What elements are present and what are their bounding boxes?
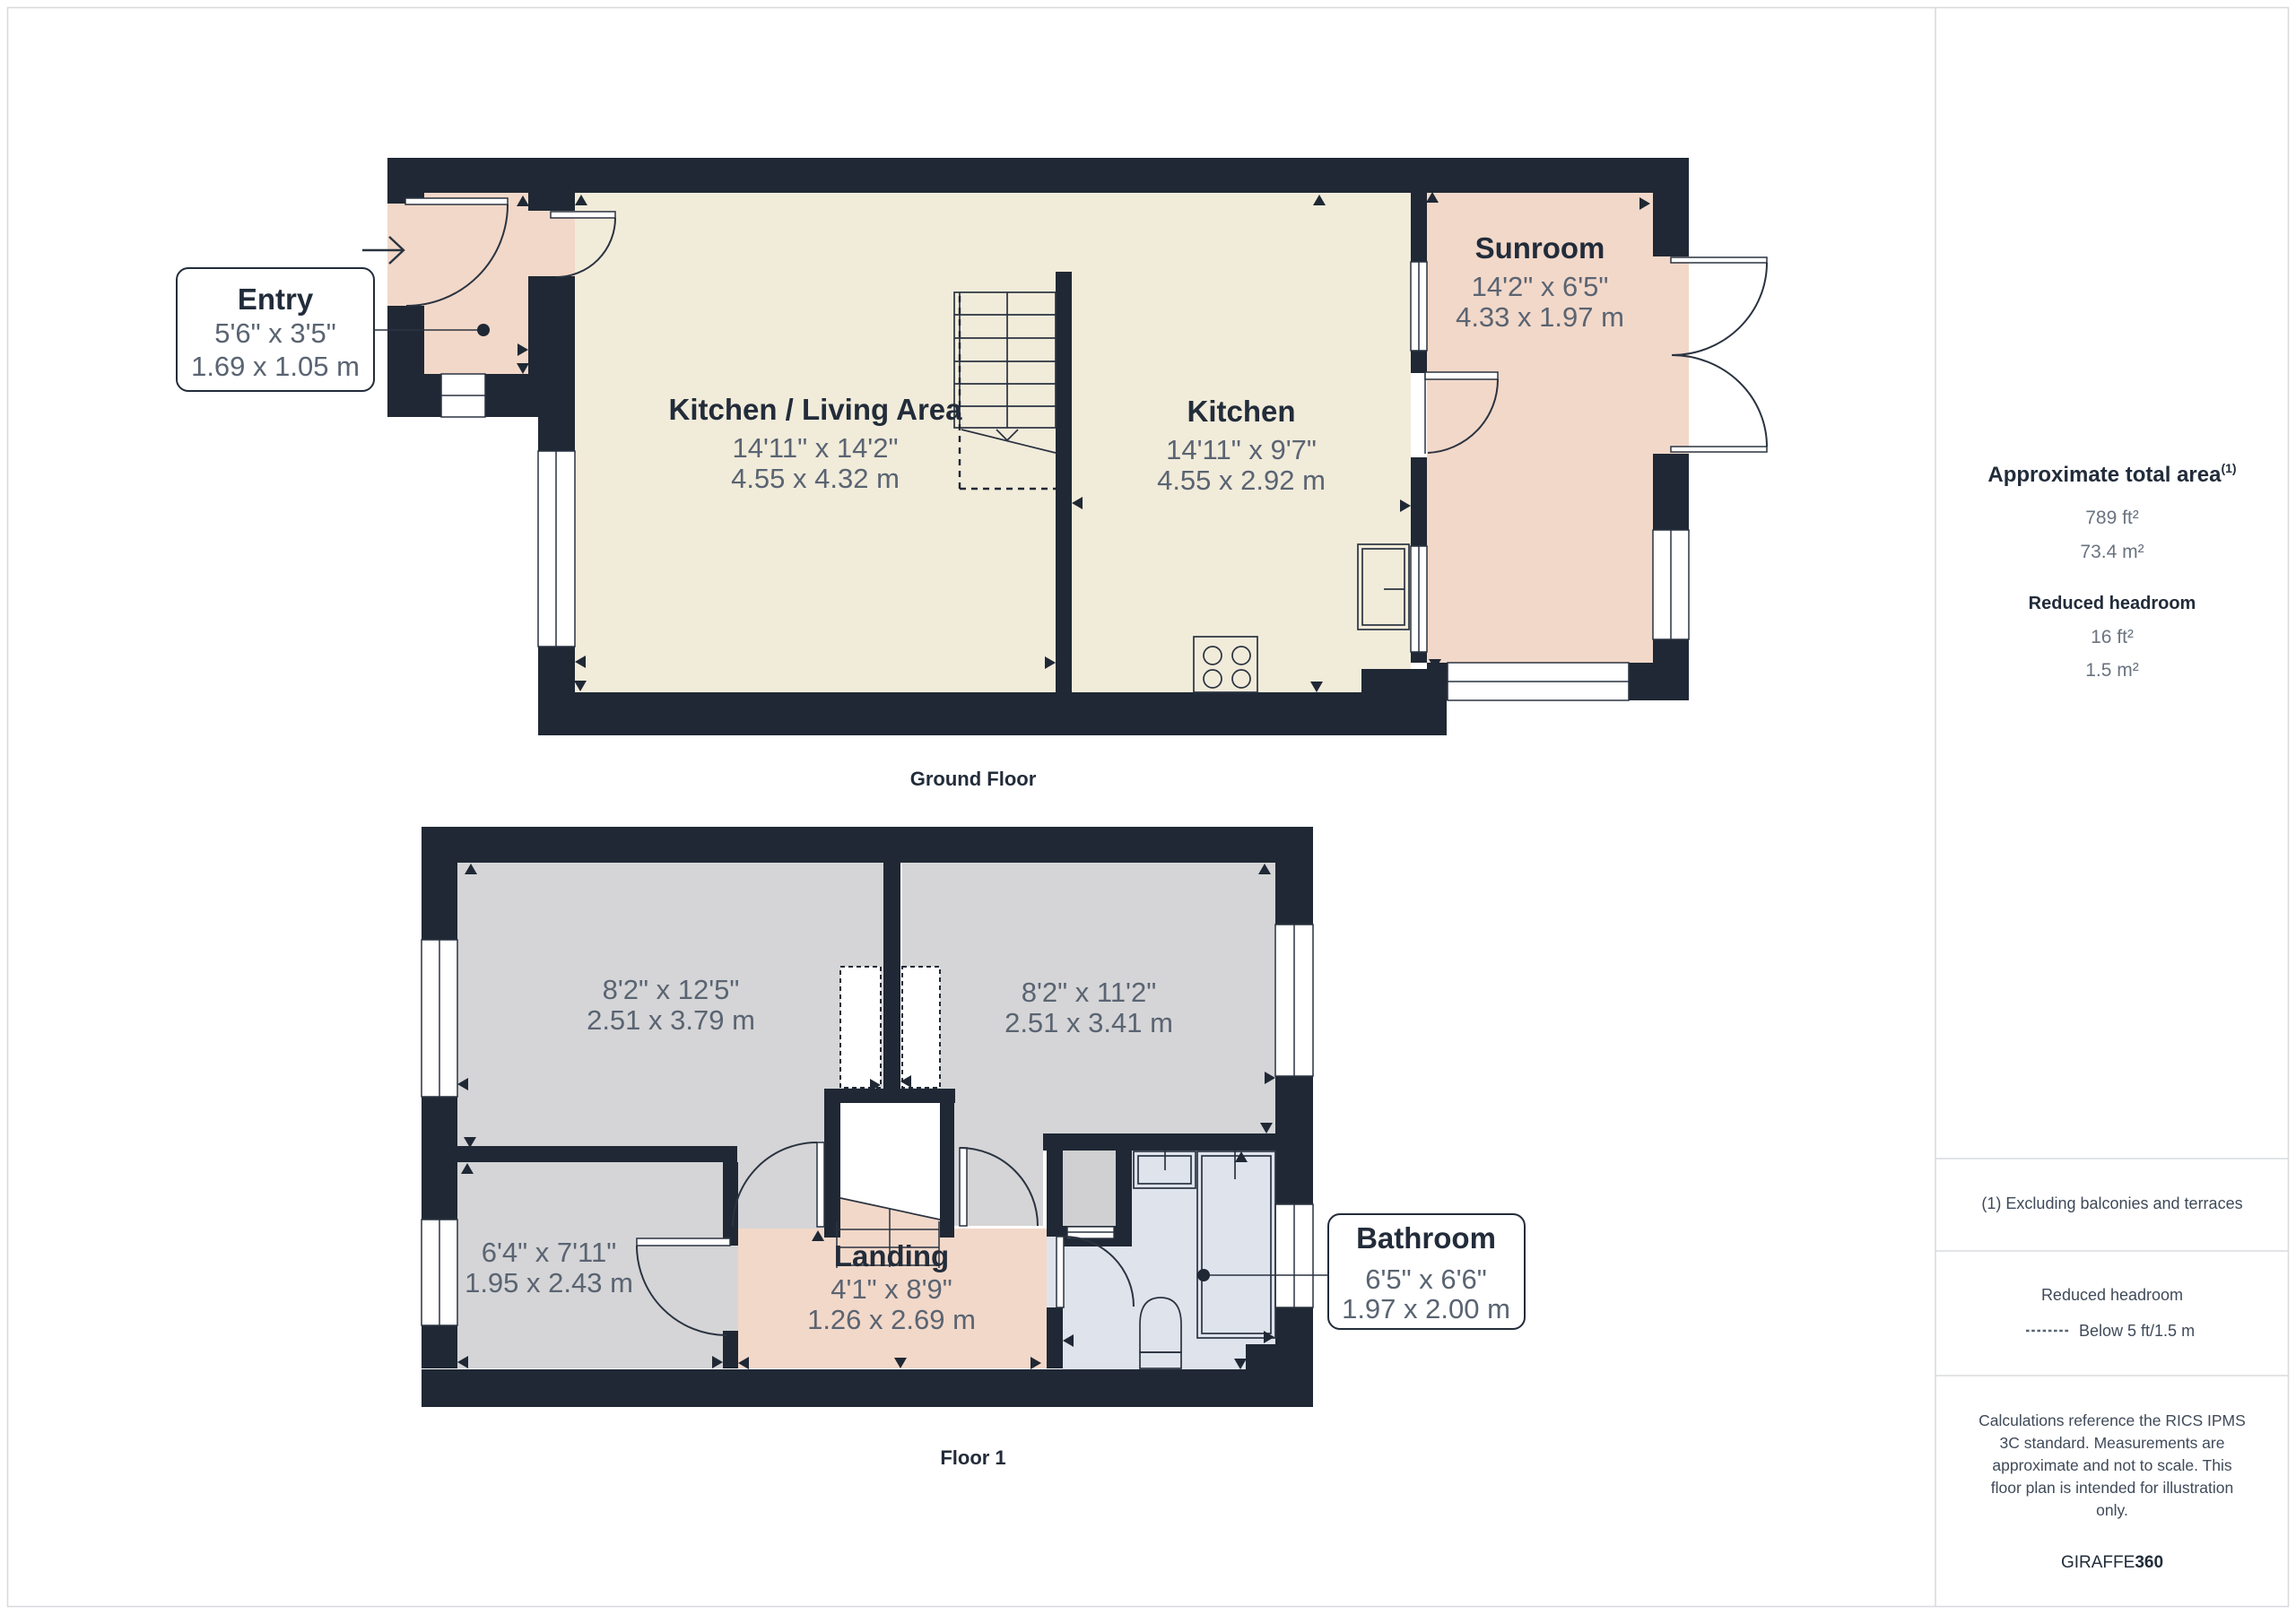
svg-text:1.97 x 2.00 m: 1.97 x 2.00 m (1342, 1293, 1510, 1324)
svg-text:2.51 x 3.41 m: 2.51 x 3.41 m (1004, 1007, 1173, 1038)
svg-text:16 ft²: 16 ft² (2091, 627, 2134, 647)
svg-text:approximate and not to scale.: approximate and not to scale. This (1992, 1456, 2231, 1474)
svg-text:1.26 x 2.69 m: 1.26 x 2.69 m (807, 1304, 976, 1335)
svg-text:Landing: Landing (834, 1239, 949, 1272)
svg-text:1.5 m²: 1.5 m² (2085, 660, 2139, 681)
svg-text:3C standard. Measurements are: 3C standard. Measurements are (2000, 1434, 2225, 1452)
svg-text:Sunroom: Sunroom (1475, 231, 1605, 265)
svg-text:5'6" x 3'5": 5'6" x 3'5" (214, 317, 336, 349)
svg-text:4.33 x 1.97 m: 4.33 x 1.97 m (1456, 301, 1624, 333)
svg-text:Bathroom: Bathroom (1356, 1221, 1496, 1255)
svg-text:4.55 x 4.32 m: 4.55 x 4.32 m (731, 463, 900, 494)
svg-text:6'4" x 7'11": 6'4" x 7'11" (482, 1237, 616, 1268)
svg-text:14'11" x 9'7": 14'11" x 9'7" (1166, 434, 1317, 465)
svg-text:8'2" x 12'5": 8'2" x 12'5" (603, 974, 740, 1005)
svg-text:Calculations reference the RIC: Calculations reference the RICS IPMS (1979, 1411, 2246, 1429)
svg-text:Kitchen / Living Area: Kitchen / Living Area (668, 393, 962, 426)
svg-text:Entry: Entry (238, 282, 314, 316)
svg-text:1.95 x 2.43 m: 1.95 x 2.43 m (465, 1267, 633, 1298)
svg-text:(1) Excluding balconies and te: (1) Excluding balconies and terraces (1981, 1194, 2242, 1212)
svg-text:789 ft²: 789 ft² (2085, 508, 2139, 528)
svg-text:8'2" x 11'2": 8'2" x 11'2" (1022, 977, 1156, 1008)
svg-text:1.69 x 1.05 m: 1.69 x 1.05 m (191, 351, 360, 382)
svg-text:GIRAFFE360: GIRAFFE360 (2061, 1553, 2163, 1572)
svg-text:floor plan is intended for ill: floor plan is intended for illustration (1991, 1479, 2233, 1497)
svg-text:14'11" x 14'2": 14'11" x 14'2" (733, 432, 899, 464)
svg-text:14'2" x 6'5": 14'2" x 6'5" (1472, 271, 1609, 302)
svg-text:4'1" x 8'9": 4'1" x 8'9" (831, 1273, 952, 1305)
svg-text:Ground Floor: Ground Floor (910, 768, 1037, 790)
svg-text:4.55 x 2.92 m: 4.55 x 2.92 m (1157, 465, 1326, 496)
svg-text:Reduced headroom: Reduced headroom (2041, 1286, 2183, 1304)
svg-text:Kitchen: Kitchen (1187, 395, 1295, 428)
svg-text:2.51 x 3.79 m: 2.51 x 3.79 m (587, 1004, 755, 1036)
svg-text:73.4 m²: 73.4 m² (2080, 542, 2144, 562)
svg-text:Floor 1: Floor 1 (940, 1446, 1005, 1469)
svg-text:6'5" x 6'6": 6'5" x 6'6" (1365, 1264, 1487, 1295)
svg-text:Below 5 ft/1.5 m: Below 5 ft/1.5 m (2079, 1322, 2195, 1340)
svg-text:only.: only. (2096, 1501, 2128, 1519)
svg-text:Approximate total area(1): Approximate total area(1) (1987, 461, 2236, 487)
svg-text:Reduced headroom: Reduced headroom (2029, 594, 2196, 613)
